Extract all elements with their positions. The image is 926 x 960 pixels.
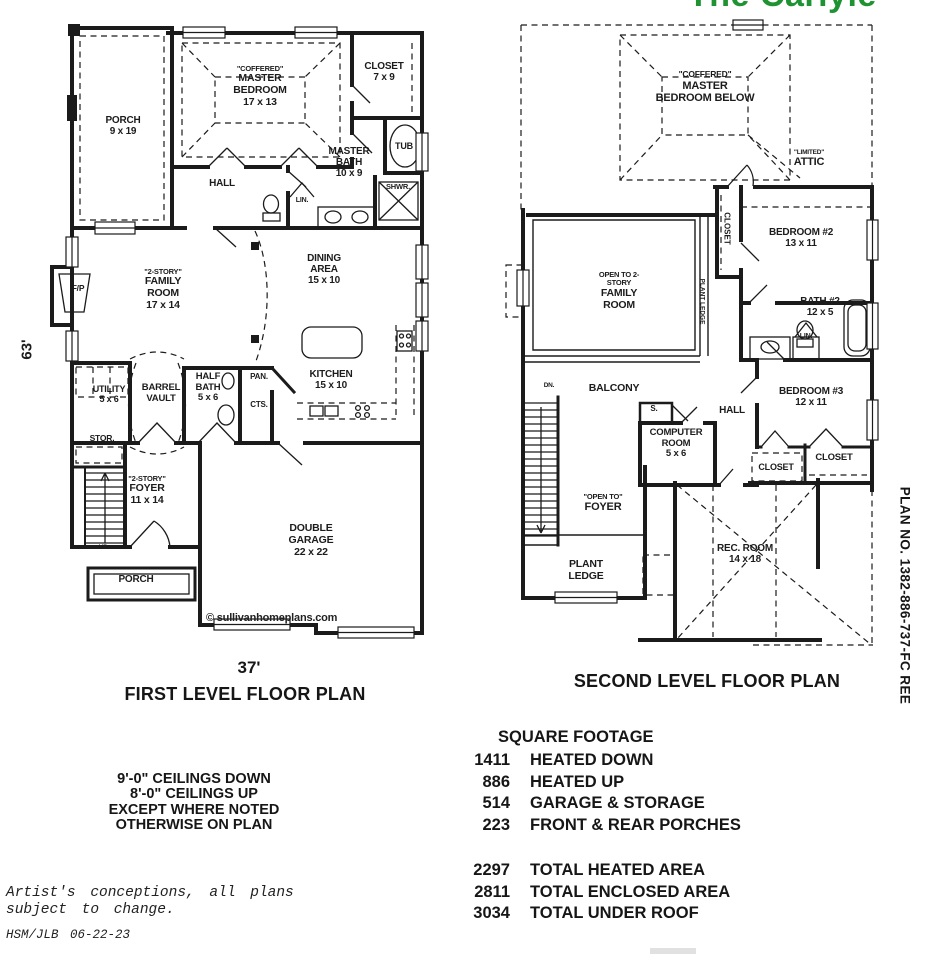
kitchen-island (302, 327, 362, 358)
room-label-linen2: LIN. (793, 333, 819, 341)
room-label-dining: DINING AREA15 x 10 (293, 253, 355, 287)
room-label-porch-bottom: PORCH (114, 574, 158, 585)
first-level-plan: PORCH9 x 19 "COFFERED" MASTER BEDROOM 17… (50, 15, 430, 665)
sqft-row: 223FRONT & REAR PORCHES (450, 815, 760, 837)
room-label-attic: "LIMITED" ATTIC (785, 149, 833, 169)
first-level-drawing (50, 15, 430, 665)
second-level-caption: SECOND LEVEL FLOOR PLAN (552, 671, 862, 692)
room-label-plant-ledge-rail: PLANT LEDGE (695, 263, 709, 339)
bottom-dimension: 37' (194, 658, 304, 678)
room-label-hall: HALL (204, 178, 240, 189)
room-label-coats: CTS. (244, 401, 274, 410)
second-level-plan: "COFFERED" MASTER BEDROOM BELOW "LIMITED… (505, 15, 905, 665)
room-label-master-bath: MASTER BATH10 x 9 (324, 146, 374, 180)
room-label-closet-bed3: CLOSET (807, 453, 861, 464)
first-level-caption: FIRST LEVEL FLOOR PLAN (92, 684, 398, 705)
room-label-rec-room: REC. ROOM14 x 18 (711, 543, 779, 565)
room-label-computer-room: COMPUTER ROOM5 x 6 (643, 428, 709, 460)
room-label-pantry: PAN. (244, 373, 274, 382)
room-label-bedroom3: BEDROOM #312 x 11 (771, 386, 851, 408)
room-label-open-foyer: "OPEN TO" FOYER (579, 493, 627, 514)
stairs-down (523, 403, 558, 536)
room-label-shelf: S. (645, 405, 663, 414)
room-label-family-room: "2-STORY" FAMILY ROOM 17 x 14 (138, 268, 188, 312)
room-label-balcony: BALCONY (587, 383, 641, 395)
watermark: © sullivanhomeplans.com (206, 612, 358, 624)
room-label-master-below: "COFFERED" MASTER BEDROOM BELOW (653, 70, 757, 104)
disclaimer-note: Artist's conceptions, all plans subject … (6, 885, 294, 919)
room-label-tub: TUB (389, 141, 419, 151)
room-label-utility: UTILITY5 x 6 (86, 384, 132, 404)
plan-title-clip: The Carlyle (688, 0, 926, 14)
plan-number: PLAN NO. 1382-886-737-FC REE (893, 385, 917, 805)
stairs-up-label: UP (94, 544, 112, 551)
print-artifact (650, 948, 696, 954)
ceiling-heights-note: 9'-0" CEILINGS DOWN 8'-0" CEILINGS UP EX… (60, 772, 328, 834)
room-label-linen: LIN. (289, 197, 315, 205)
room-label-kitchen: KITCHEN15 x 10 (306, 369, 356, 391)
room-label-shower: SHWR. (380, 183, 416, 191)
square-footage-table: SQUARE FOOTAGE 1411HEATED DOWN 886HEATED… (450, 728, 760, 925)
floor-plan-sheet: The Carlyle (0, 0, 926, 960)
room-label-bedroom2: BEDROOM #213 x 11 (761, 227, 841, 249)
stairs-down-label: DN. (539, 382, 559, 389)
room-label-closet: CLOSET7 x 9 (360, 61, 408, 83)
toilet-icon (263, 195, 280, 221)
room-label-master-bedroom: "COFFERED" MASTER BEDROOM 17 x 13 (222, 65, 298, 109)
sqft-row: 886HEATED UP (450, 772, 760, 794)
left-dimension: 63' (10, 326, 44, 372)
sqft-total-row: 3034TOTAL UNDER ROOF (450, 903, 760, 925)
room-label-hall2: HALL (714, 405, 750, 416)
room-label-open-family: OPEN TO 2-STORY FAMILY ROOM (585, 271, 653, 311)
sqft-totals: 2297TOTAL HEATED AREA 2811TOTAL ENCLOSED… (450, 860, 760, 925)
vanity-sink-icon (750, 337, 790, 359)
room-label-bath2: BATH #212 x 5 (791, 296, 849, 318)
stairs-up (85, 467, 125, 547)
room-label-half-bath: HALF BATH5 x 6 (188, 372, 228, 404)
sqft-row: 514GARAGE & STORAGE (450, 793, 760, 815)
plan-title: The Carlyle (688, 0, 926, 14)
room-label-storage: STOR. (86, 434, 118, 444)
room-label-barrel-vault: BARREL VAULT (136, 383, 186, 404)
room-label-foyer: "2-STORY" FOYER 11 x 14 (124, 475, 170, 507)
double-sink-icon (318, 207, 375, 228)
sqft-total-row: 2297TOTAL HEATED AREA (450, 860, 760, 882)
sqft-total-row: 2811TOTAL ENCLOSED AREA (450, 882, 760, 904)
sqft-row: 1411HEATED DOWN (450, 750, 760, 772)
revision-stamp: HSM/JLB 06-22-23 (6, 928, 130, 942)
room-label-fireplace: F/P (64, 284, 92, 294)
room-label-porch-top: PORCH9 x 19 (88, 115, 158, 137)
room-label-plant-ledge: PLANT LEDGE (561, 559, 611, 583)
room-label-garage: DOUBLE GARAGE22 x 22 (282, 523, 340, 558)
square-footage-title: SQUARE FOOTAGE (450, 728, 760, 747)
room-label-closet-bed2: CLOSET (719, 199, 735, 257)
room-label-closet-hall: CLOSET (749, 462, 803, 472)
